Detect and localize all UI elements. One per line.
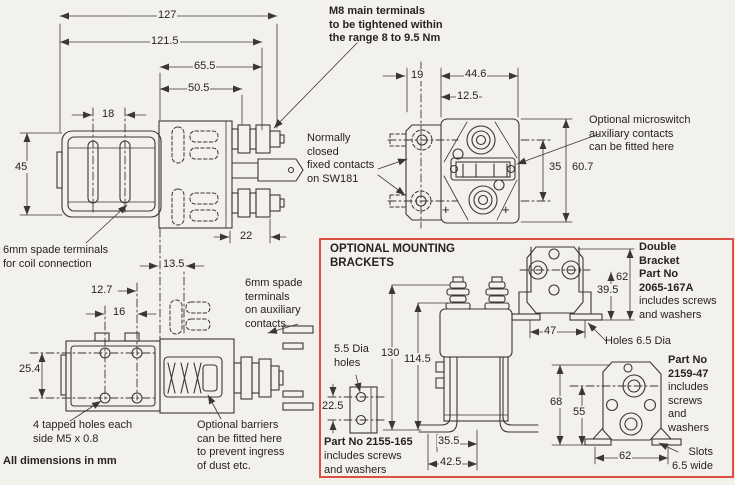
dim-12-5-label: 12.5 <box>456 90 479 102</box>
dim-45-label: 45 <box>14 161 28 173</box>
note-aux-terminals: 6mm spade terminals on auxiliary contact… <box>245 277 302 331</box>
dim-12-7-label: 12.7 <box>90 284 113 296</box>
aux-contacts-hidden-detail <box>170 300 210 334</box>
dim-127-label: 127 <box>157 9 177 21</box>
note-holes-6-5-dia: Holes 6.5 Dia <box>605 335 671 349</box>
dim-35-5-label: 35.5 <box>437 435 460 447</box>
dim-25-4-label: 25.4 <box>18 363 41 375</box>
double-bracket-name: Double Bracket <box>639 241 679 268</box>
dim-44-6-label: 44.6 <box>464 68 487 80</box>
bracket-box-title: OPTIONAL MOUNTING BRACKETS <box>330 243 455 270</box>
dim-13-5-label: 13.5 <box>162 258 185 270</box>
note-m8-terminals: M8 main terminals to be tightened within… <box>329 5 443 46</box>
dim-19-label: 19 <box>410 69 424 81</box>
dim-62-base-label: 62 <box>618 450 632 462</box>
front-view-drawing <box>378 62 599 228</box>
dim-39-5-label: 39.5 <box>596 284 619 296</box>
note-5-5-dia-holes: 5.5 Dia holes <box>334 343 369 370</box>
note-coil-terminals: 6mm spade terminals for coil connection <box>3 244 108 271</box>
part-no-2065-167a: Part No 2065-167A <box>639 268 693 295</box>
dim-62-label: 62 <box>615 271 629 283</box>
note-normally-closed: Normally closed fixed contacts on SW181 <box>307 132 374 186</box>
part-2065-includes: includes screws and washers <box>639 295 717 322</box>
dim-60-7-label: 60.7 <box>571 161 594 173</box>
dim-42-5-label: 42.5 <box>439 456 462 468</box>
part-no-2155-165: Part No 2155-165 <box>324 436 413 450</box>
note-tapped-holes: 4 tapped holes each side M5 x 0.8 <box>33 419 132 446</box>
dim-22-5-label: 22.5 <box>321 400 344 412</box>
dim-35-label: 35 <box>548 161 562 173</box>
dim-121-5-label: 121.5 <box>150 35 180 47</box>
note-all-dimensions: All dimensions in mm <box>3 455 117 469</box>
dim-114-5-label: 114.5 <box>403 353 432 365</box>
dim-50-5-label: 50.5 <box>187 82 210 94</box>
plus-mark: + <box>442 203 450 216</box>
note-slots-6-5-wide: Slots 6.5 wide <box>666 446 713 473</box>
dim-16-label: 16 <box>112 306 126 318</box>
bottom-view-drawing <box>30 324 313 421</box>
note-barriers: Optional barriers can be fitted here to … <box>197 419 284 473</box>
dim-68-label: 68 <box>549 396 563 408</box>
engineering-drawing-page: M8 main terminals to be tightened within… <box>0 0 735 485</box>
dim-55-label: 55 <box>572 406 586 418</box>
note-microswitch: Optional microswitch auxiliary contacts … <box>589 114 690 155</box>
part-2155-includes: includes screws and washers <box>324 450 402 477</box>
plus-mark: + <box>502 203 510 216</box>
side-view-drawing <box>57 121 303 228</box>
dim-65-5-label: 65.5 <box>193 60 216 72</box>
dim-130-label: 130 <box>380 347 400 359</box>
side-view-dimensions <box>20 16 357 400</box>
dim-22-label: 22 <box>239 230 253 242</box>
part-no-2159-47: Part No 2159-47 <box>668 354 708 381</box>
dim-47-label: 47 <box>543 325 557 337</box>
part-2159-includes: includes screws and washers <box>668 381 709 435</box>
dim-18-label: 18 <box>101 108 115 120</box>
